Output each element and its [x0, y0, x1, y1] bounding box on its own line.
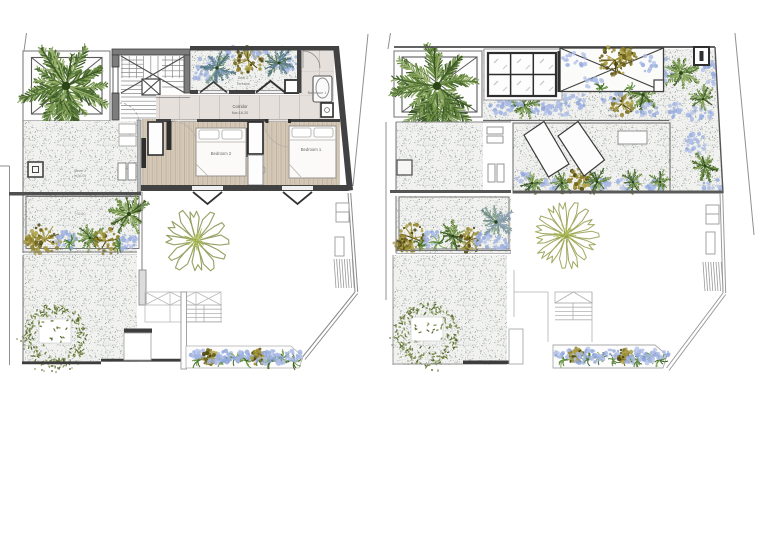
svg-text:9x36.05: 9x36.05	[74, 174, 87, 178]
svg-text:Corridor: Corridor	[232, 104, 248, 109]
svg-text:Zwb 1: Zwb 1	[608, 108, 618, 112]
svg-text:Bedroom 1: Bedroom 1	[301, 147, 322, 152]
svg-text:Bathroom 1: Bathroom 1	[308, 91, 327, 95]
svg-text:+40.50: +40.50	[607, 114, 618, 118]
svg-text:Bedroom 2: Bedroom 2	[211, 151, 232, 156]
svg-text:Zwb 2: Zwb 2	[238, 75, 250, 80]
svg-text:+36.80: +36.80	[74, 212, 85, 216]
svg-text:Store 1: Store 1	[74, 169, 86, 173]
svg-text:Terrace: Terrace	[236, 81, 250, 86]
svg-text:Na=16.20: Na=16.20	[232, 111, 249, 115]
